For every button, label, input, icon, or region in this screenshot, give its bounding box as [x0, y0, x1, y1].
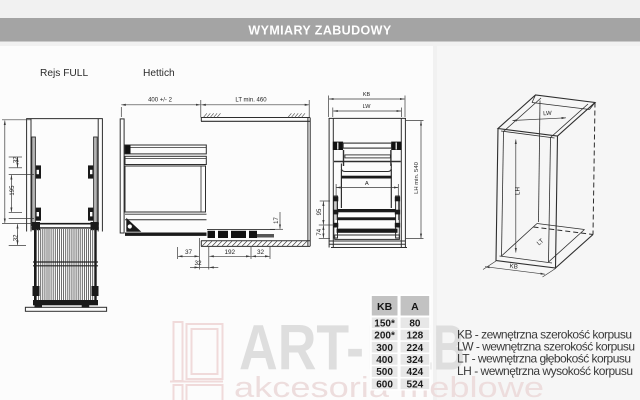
svg-text:KB: KB	[363, 92, 371, 98]
svg-text:32: 32	[13, 234, 19, 241]
svg-text:LH min. 540: LH min. 540	[414, 161, 420, 193]
svg-text:KB: KB	[509, 263, 518, 271]
svg-text:LT min. 460: LT min. 460	[235, 98, 267, 104]
svg-text:200*: 200*	[374, 331, 395, 342]
svg-text:Rejs FULL: Rejs FULL	[40, 68, 88, 79]
svg-text:524: 524	[407, 379, 424, 390]
svg-text:95: 95	[317, 208, 323, 215]
svg-text:32: 32	[257, 249, 265, 256]
svg-text:80: 80	[409, 318, 421, 329]
svg-text:LW: LW	[363, 104, 372, 110]
svg-text:A: A	[365, 181, 369, 187]
svg-text:195: 195	[10, 185, 16, 196]
svg-text:WYMIARY ZABUDOWY: WYMIARY ZABUDOWY	[248, 23, 391, 37]
svg-text:32: 32	[194, 260, 202, 267]
svg-text:400: 400	[376, 355, 393, 366]
svg-text:LH: LH	[515, 187, 522, 195]
svg-text:300: 300	[376, 343, 393, 354]
svg-text:A: A	[411, 301, 419, 313]
svg-text:37: 37	[185, 249, 193, 256]
svg-text:600: 600	[376, 379, 393, 390]
svg-text:400 +/- 2: 400 +/- 2	[148, 98, 173, 104]
svg-text:Hettich: Hettich	[143, 68, 175, 79]
svg-text:17: 17	[274, 217, 280, 224]
svg-text:74: 74	[317, 228, 323, 235]
svg-text:LH - wewnętrzna wysokość korpu: LH - wewnętrzna wysokość korpusu	[457, 364, 633, 378]
svg-text:150*: 150*	[374, 318, 395, 329]
svg-text:224: 224	[407, 343, 424, 354]
svg-text:LW: LW	[543, 111, 552, 117]
svg-text:32: 32	[14, 156, 20, 163]
svg-text:192: 192	[224, 249, 235, 256]
svg-text:324: 324	[407, 355, 424, 366]
svg-text:KB: KB	[377, 301, 393, 313]
svg-text:424: 424	[407, 367, 424, 378]
svg-text:128: 128	[407, 331, 424, 342]
svg-text:500: 500	[376, 367, 393, 378]
